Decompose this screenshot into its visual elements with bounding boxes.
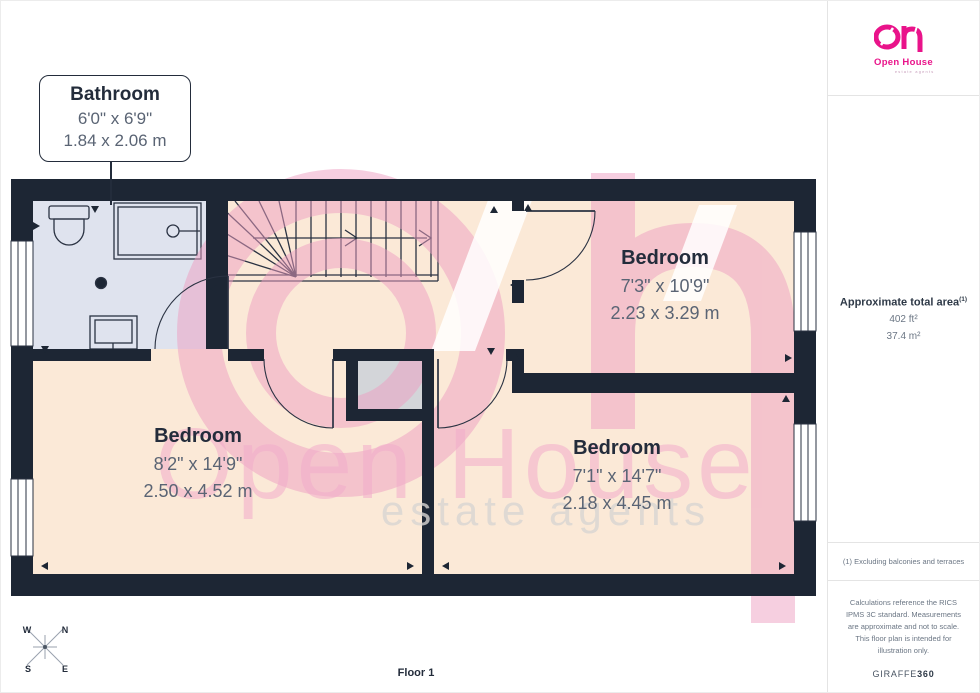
room-size-imperial: 8'2" x 14'9" — [143, 451, 252, 478]
svg-text:N: N — [62, 625, 69, 635]
disclaimer-section: Calculations reference the RICS IPMS 3C … — [828, 580, 979, 692]
agency-logo: Open House estate agents — [828, 1, 979, 96]
svg-text:W: W — [23, 625, 32, 635]
soil-pipe — [96, 278, 107, 289]
room-label-bedroom-bottom-right: Bedroom 7'1" x 14'7" 2.18 x 4.45 m — [562, 437, 671, 517]
window — [794, 232, 816, 331]
total-area-imperial: 402 ft² — [889, 314, 917, 325]
room-size-metric: 1.84 x 2.06 m — [42, 130, 188, 152]
callout-leader-line — [110, 161, 112, 205]
compass-icon: W N S E — [11, 615, 87, 681]
svg-text:E: E — [62, 664, 68, 674]
disclaimer-text: Calculations reference the RICS IPMS 3C … — [845, 597, 963, 657]
room-name: Bathroom — [42, 84, 188, 106]
room-label-bedroom-bottom-left: Bedroom 8'2" x 14'9" 2.50 x 4.52 m — [143, 425, 252, 505]
footnote-text: (1) Excluding balconies and terraces — [843, 557, 964, 566]
floorplan-page: Open House estate agents Bathroom 6'0" x… — [0, 0, 980, 693]
footnote-section: (1) Excluding balconies and terraces — [828, 542, 979, 580]
info-sidebar: Open House estate agents Approximate tot… — [827, 1, 979, 692]
room-name: Bedroom — [143, 425, 252, 448]
generator-brand: GIRAFFE360 — [872, 669, 934, 679]
room-size-metric: 2.18 x 4.45 m — [562, 490, 671, 517]
total-area-section: Approximate total area(1) 402 ft² 37.4 m… — [828, 96, 979, 542]
window — [794, 424, 816, 521]
agency-tagline: estate agents — [873, 69, 935, 74]
room-size-metric: 2.23 x 3.29 m — [610, 300, 719, 327]
total-area-metric: 37.4 m² — [887, 331, 921, 342]
window — [11, 241, 33, 346]
room-size-imperial: 6'0" x 6'9" — [42, 108, 188, 130]
svg-text:S: S — [25, 664, 31, 674]
room-size-imperial: 7'3" x 10'9" — [610, 273, 719, 300]
footnote-ref: (1) — [959, 296, 967, 303]
floor-label: Floor 1 — [398, 667, 435, 679]
open-house-monogram-icon — [874, 22, 934, 56]
bathroom-callout: Bathroom 6'0" x 6'9" 1.84 x 2.06 m — [39, 75, 191, 162]
agency-brand-name: Open House — [874, 57, 933, 68]
room-name: Bedroom — [610, 247, 719, 270]
room-label-bedroom-top-right: Bedroom 7'3" x 10'9" 2.23 x 3.29 m — [610, 247, 719, 327]
room-size-imperial: 7'1" x 14'7" — [562, 463, 671, 490]
room-size-metric: 2.50 x 4.52 m — [143, 478, 252, 505]
window — [11, 479, 33, 556]
room-name: Bedroom — [562, 437, 671, 460]
total-area-title: Approximate total area(1) — [840, 296, 967, 309]
